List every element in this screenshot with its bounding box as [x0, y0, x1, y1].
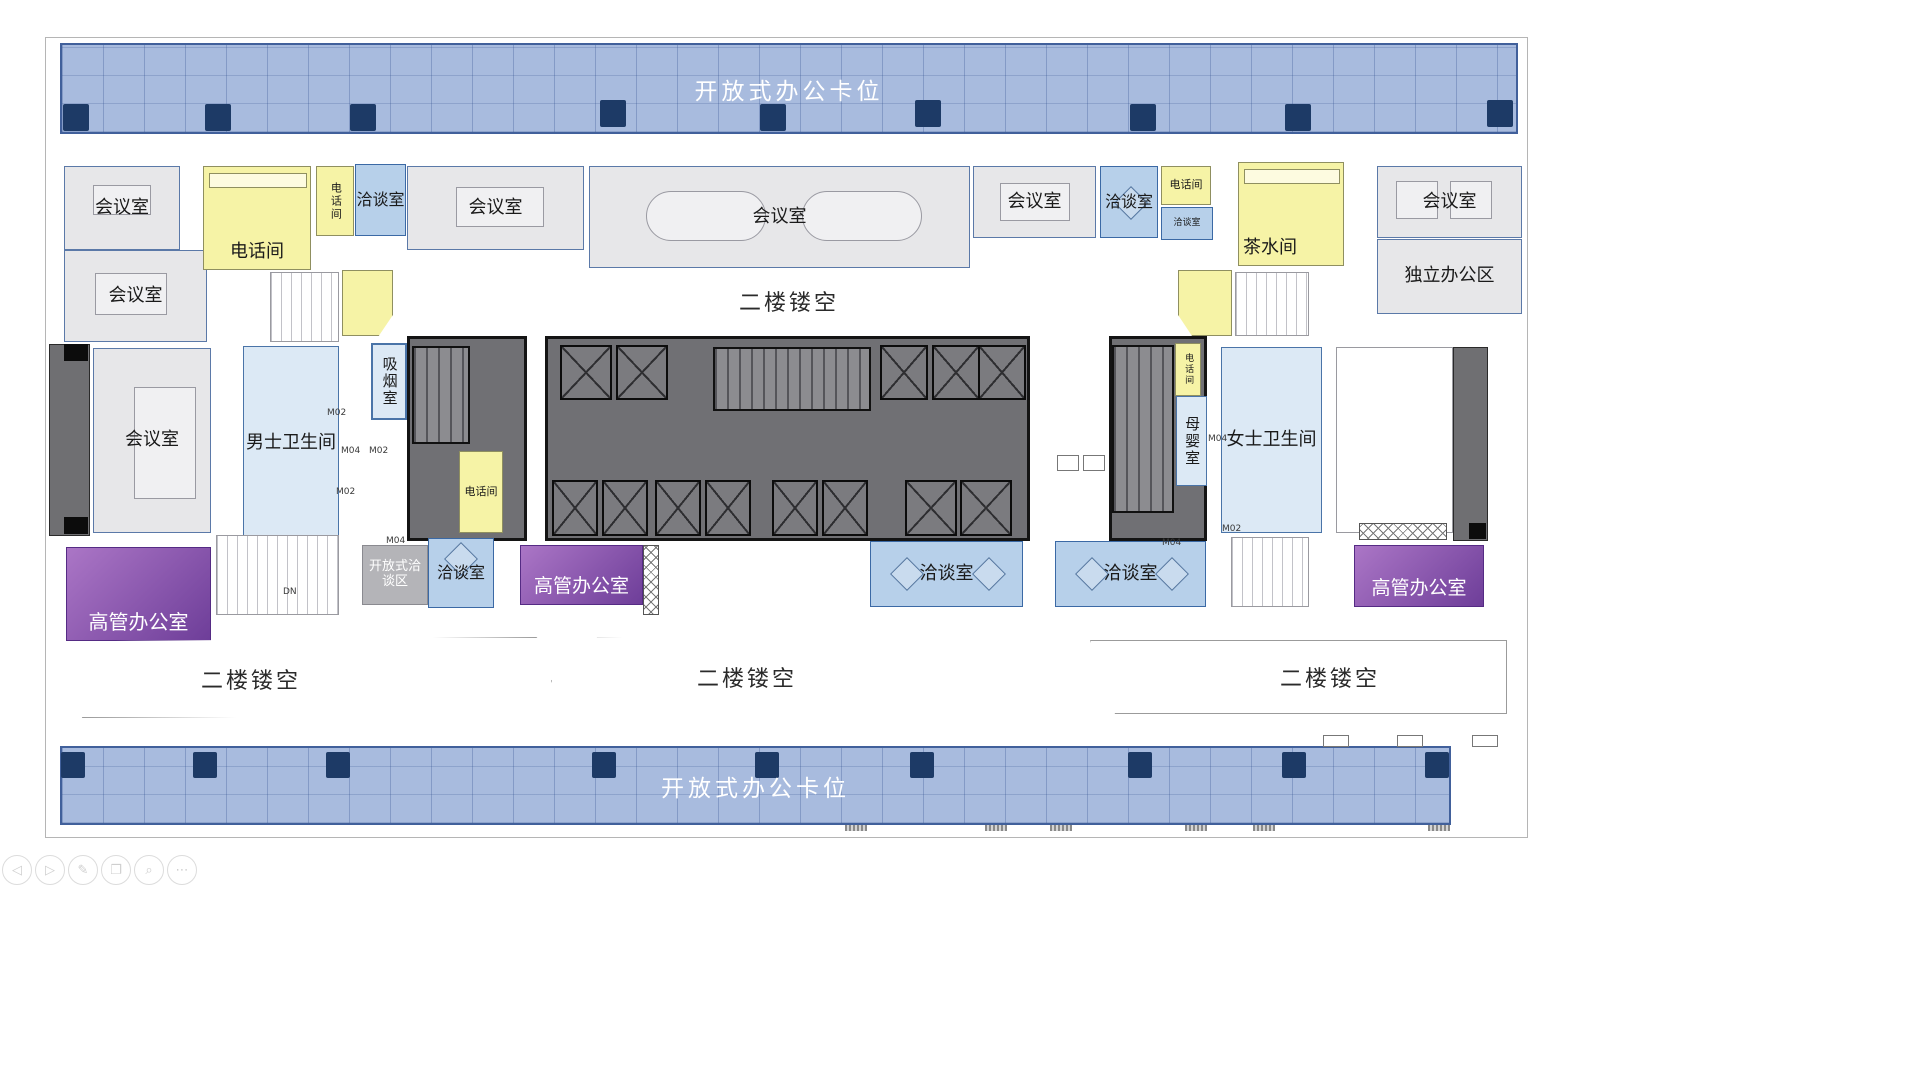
door-tag: M04	[341, 446, 360, 456]
void-label: 二楼镂空	[1260, 661, 1400, 693]
room-label: 高管办公室	[534, 576, 629, 598]
phone-booth: 电话间	[459, 451, 503, 533]
back-glyph: ◁	[12, 863, 22, 878]
elevator-shaft	[560, 345, 612, 400]
room-label: 洽谈室	[1105, 193, 1153, 211]
negotiation-room: 洽谈室	[1055, 541, 1206, 607]
executive-office: 高管办公室	[1354, 545, 1484, 607]
dark-desk	[205, 104, 231, 131]
executive-office: 高管办公室	[520, 545, 643, 605]
door-tag: M02	[327, 408, 346, 418]
elevator-shaft	[905, 480, 957, 536]
elevator-shaft	[552, 480, 598, 536]
dark-desk	[1425, 752, 1449, 778]
phone-booth: 电话间	[1175, 343, 1201, 396]
room-label: 洽谈室	[920, 564, 974, 585]
negotiation-room: 洽谈室	[355, 164, 406, 236]
core-staircase	[412, 346, 470, 444]
edit-icon[interactable]: ✎	[68, 855, 98, 885]
door-threshold	[1253, 825, 1275, 831]
door-threshold	[1185, 825, 1207, 831]
corridor-desk	[1083, 455, 1105, 471]
down-stair-label: DN	[283, 587, 297, 597]
door-tag: M04	[386, 536, 405, 546]
room-label: 电话间	[230, 242, 284, 263]
phone-zone: 电话间	[203, 166, 311, 270]
open-negotiation-area: 开放式洽谈区	[362, 545, 428, 605]
men-restroom: 男士卫生间	[243, 346, 339, 541]
room-label: 茶水间	[1243, 238, 1297, 259]
staircase	[1231, 537, 1309, 607]
dark-desk	[600, 100, 626, 127]
phone-booth: 电话间	[1161, 166, 1211, 205]
void-label: 二楼镂空	[677, 661, 817, 693]
room-label: 吸烟室	[380, 356, 397, 407]
room-label: 开放式洽谈区	[365, 560, 425, 590]
room-label: 男士卫生间	[246, 433, 336, 454]
dark-desk	[1130, 104, 1156, 131]
staircase	[270, 272, 339, 342]
room-label: 会议室	[469, 198, 523, 219]
zoom-icon[interactable]: ⌕	[134, 855, 164, 885]
door-tag: M04	[1162, 538, 1181, 548]
cabinet	[1397, 735, 1423, 747]
dark-desk	[910, 752, 934, 778]
cabinet	[1323, 735, 1349, 747]
elevator-shaft	[705, 480, 751, 536]
negotiation-room: 洽谈室	[1100, 166, 1158, 238]
room-label: 洽谈室	[1173, 218, 1200, 228]
more-icon[interactable]: ⋯	[167, 855, 197, 885]
dark-desk	[592, 752, 616, 778]
room-label: 母婴室	[1183, 416, 1200, 467]
dark-desk	[1285, 104, 1311, 131]
door-threshold	[1050, 825, 1072, 831]
room-label: 电话间	[1183, 353, 1193, 386]
room-label: 会议室	[1423, 192, 1477, 213]
room-label: 洽谈室	[437, 564, 485, 582]
meeting-room: 会议室	[589, 166, 970, 268]
dark-desk	[193, 752, 217, 778]
door-tag: M04	[1208, 434, 1227, 444]
copy-icon[interactable]: ❐	[101, 855, 131, 885]
door-tag: M02	[336, 487, 355, 497]
meeting-room: 会议室	[407, 166, 584, 250]
elevator-shaft	[932, 345, 980, 400]
cabinet	[1472, 735, 1498, 747]
elevator-shaft	[978, 345, 1026, 400]
meeting-room: 会议室	[64, 166, 180, 250]
dark-desk	[915, 100, 941, 127]
door-threshold	[1428, 825, 1450, 831]
dark-desk	[1487, 100, 1513, 127]
open-office-bottom-label: 开放式办公卡位	[661, 769, 850, 803]
room-label: 独立办公区	[1405, 266, 1495, 287]
truss-column	[643, 545, 659, 615]
executive-office: 高管办公室	[66, 547, 211, 641]
dark-desk	[760, 104, 786, 131]
staircase	[1235, 272, 1309, 336]
negotiation-room: 洽谈室	[428, 538, 494, 608]
room-label: 洽谈室	[356, 191, 404, 209]
open-office-top-label: 开放式办公卡位	[695, 72, 884, 106]
elevator-shaft	[772, 480, 818, 536]
door-tag: M02	[369, 446, 388, 456]
wall-strip	[1453, 347, 1488, 541]
corridor-desk	[1057, 455, 1079, 471]
room-label: 电话间	[1170, 179, 1203, 192]
room-label: 电话间	[329, 182, 342, 221]
elevator-shaft	[822, 480, 868, 536]
meeting-room: 会议室	[1377, 166, 1522, 238]
independent-office: 独立办公区	[1377, 239, 1522, 314]
room-label: 洽谈室	[1104, 564, 1158, 585]
meeting-room: 会议室	[93, 348, 211, 533]
negotiation-room: 洽谈室	[1161, 207, 1213, 240]
wall-strip	[49, 344, 90, 536]
door-tag: M02	[1222, 524, 1241, 534]
room-label: 会议室	[109, 286, 163, 307]
back-icon[interactable]: ◁	[2, 855, 32, 885]
room-label: 会议室	[125, 430, 179, 451]
elevator-shaft	[602, 480, 648, 536]
meeting-room: 会议室	[64, 250, 207, 342]
dark-desk	[61, 752, 85, 778]
smoking-room: 吸烟室	[371, 343, 407, 420]
dark-desk	[326, 752, 350, 778]
room-label: 女士卫生间	[1227, 430, 1317, 451]
copy-glyph: ❐	[110, 863, 122, 878]
room-label: 会议室	[95, 198, 149, 219]
room-label: 会议室	[1008, 192, 1062, 213]
meeting-room: 会议室	[973, 166, 1096, 238]
dark-desk	[350, 104, 376, 131]
room-label: 高管办公室	[1371, 578, 1466, 600]
void-label: 二楼镂空	[181, 663, 321, 695]
elevator-shaft	[655, 480, 701, 536]
edit-glyph: ✎	[78, 863, 89, 878]
core-staircase	[1112, 345, 1174, 513]
zoom-glyph: ⌕	[145, 863, 152, 878]
elevator-shaft	[960, 480, 1012, 536]
pantry: 茶水间	[1238, 162, 1344, 266]
door-threshold	[845, 825, 867, 831]
right-wing-room	[1336, 347, 1453, 533]
phone-booth: 电话间	[316, 166, 354, 236]
dark-desk	[63, 104, 89, 131]
phone-zone-wedge	[342, 270, 393, 336]
wall-block	[64, 344, 88, 361]
dark-desk	[1282, 752, 1306, 778]
wall-block	[64, 517, 88, 534]
void-label: 二楼镂空	[719, 285, 859, 317]
wall-block	[1469, 523, 1486, 539]
door-threshold	[985, 825, 1007, 831]
women-restroom: 女士卫生间	[1221, 347, 1322, 533]
nursing-room: 母婴室	[1176, 396, 1207, 486]
floor-void	[551, 637, 1112, 718]
truss-beam	[1359, 523, 1447, 540]
elevator-shaft	[880, 345, 928, 400]
room-label: 会议室	[753, 207, 807, 228]
negotiation-room: 洽谈室	[870, 541, 1023, 607]
elevator-shaft	[616, 345, 668, 400]
forward-icon[interactable]: ▷	[35, 855, 65, 885]
floor-plan-canvas: 开放式办公卡位 会议室 会议室 会议室 高管办公室 电话间 电话间 洽谈室 会议…	[0, 0, 1920, 1080]
room-label: 电话间	[465, 486, 498, 499]
forward-glyph: ▷	[45, 863, 55, 878]
pantry-wedge	[1178, 270, 1232, 336]
staircase	[216, 535, 339, 615]
core-staircase	[713, 347, 871, 411]
room-label: 高管办公室	[89, 611, 189, 634]
dark-desk	[1128, 752, 1152, 778]
more-glyph: ⋯	[176, 863, 189, 878]
